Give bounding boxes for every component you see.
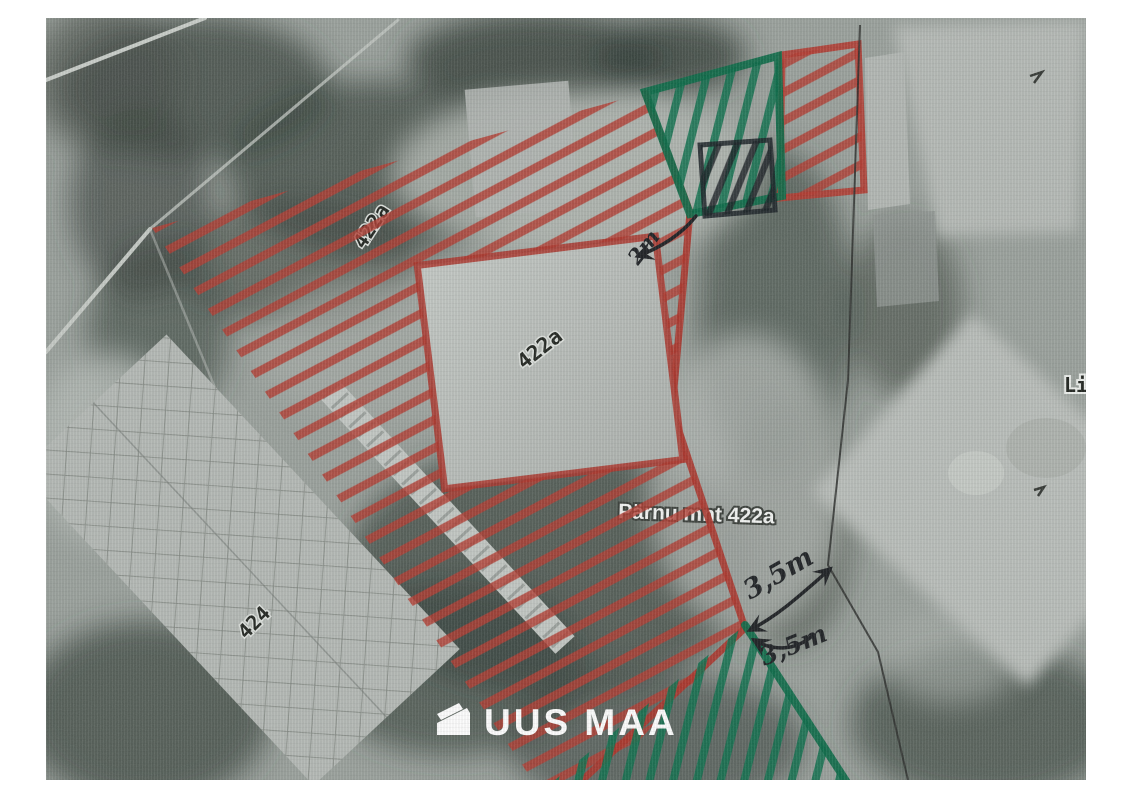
aerial-photo: 422a Pärnu mnt 422a 422a	[46, 18, 1086, 780]
map-drawing: 422a Pärnu mnt 422a 422a	[46, 18, 1086, 780]
scanned-page: 422a Pärnu mnt 422a 422a	[0, 0, 1131, 800]
scan-grain	[46, 18, 1086, 780]
